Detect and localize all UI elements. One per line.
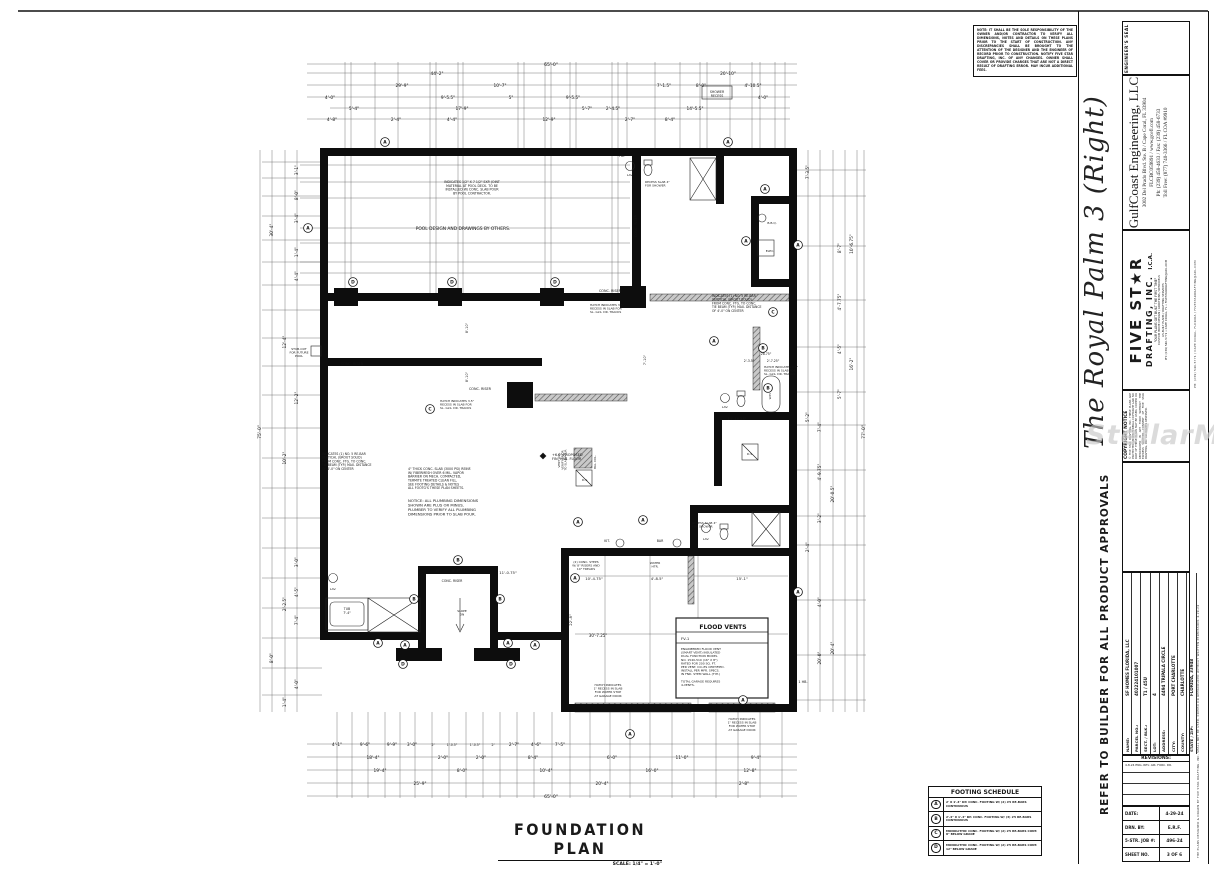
revision-entry <box>1123 773 1189 784</box>
sheet-admin-row: 5-STR. JOB #:496-24 <box>1123 835 1189 849</box>
svg-text:A: A <box>383 140 387 146</box>
plan-annotation: 5'-4" <box>349 106 359 112</box>
plan-annotation: INDICATES (1) NO. 5 RE-BARVERTICAL (GROU… <box>321 452 372 471</box>
bar-sink-symbol <box>673 539 681 547</box>
plan-annotation: 2'-3.5" <box>744 359 755 363</box>
plan-annotation: RECESS SLAB 4"FOR SHOWER <box>692 521 717 529</box>
plan-annotation: WATERHTR. <box>650 561 660 569</box>
plan-annotation: 8'-0" <box>457 768 467 774</box>
plan-annotation: 4'-0" <box>325 95 335 101</box>
footing-type-marker: D <box>349 278 358 287</box>
plan-annotation: 9'-5.5" <box>441 95 455 101</box>
plan-annotation: CONC. RISER <box>341 362 364 366</box>
footing-mark: B <box>929 812 944 825</box>
project-info-value: FLORIDA, 33948 <box>1189 659 1194 696</box>
plan-annotation: 30'-4" <box>269 224 275 237</box>
plan-annotation: 16'-0" <box>646 768 659 774</box>
benchmark-diamond <box>540 453 546 459</box>
footing-type-marker: A <box>304 224 313 233</box>
plan-annotation: 2'-4" <box>805 542 811 552</box>
project-info-row: PARCEL NO.:402224101007 <box>1132 573 1141 754</box>
plan-annotation: 10'-2" <box>282 452 288 465</box>
plan-annotation: INDICATES 1/2" X 7 1/2" EXP. JOINTMATERI… <box>444 180 500 196</box>
footing-type-marker: B <box>496 595 505 604</box>
plan-annotation: 10'-6.75" <box>849 234 855 254</box>
footing-type-marker: A <box>724 138 733 147</box>
plan-annotation: 3'-2" <box>817 513 823 523</box>
sheet-admin-value: 496-24 <box>1160 838 1189 843</box>
plan-annotation: 4'-6" <box>531 742 541 748</box>
plan-annotation: 65'-0" <box>544 62 558 68</box>
footing-type-marker: D <box>551 278 560 287</box>
drawing-title-block: FOUNDATION PLAN SCALE: 1/4" = 1'-0" <box>498 820 662 867</box>
engineering-firm-tollfree: Toll Free: (877) 740-3366 / FL COA #9910 <box>1163 76 1170 229</box>
footing-schedule-row: B2'-4" X 1'-4" DP. CONC. FOOTING W/ (3) … <box>929 812 1041 826</box>
svg-text:A: A <box>796 590 800 596</box>
plan-annotation: 8'-0" <box>294 190 300 200</box>
footing-type-marker: B <box>759 344 768 353</box>
svg-text:A: A <box>726 140 730 146</box>
plan-annotation: 8'-4" <box>665 117 675 123</box>
project-info-value: T1 / 45U <box>1143 677 1148 696</box>
lav-symbol <box>329 574 338 583</box>
svg-text:A: A <box>763 187 767 193</box>
drawing-sheet: 65'-0"44'-2"20'-10"29'-9"10'-7"7'-1.5"8'… <box>0 0 1214 869</box>
plan-annotation: 3'-1" <box>294 165 300 175</box>
engineering-firm-license: FLCBC059891 / www.gcefl.com <box>1149 76 1156 229</box>
plan-annotation: 14'-5.5" <box>686 106 703 112</box>
plan-annotation: CONC. RISER <box>469 387 492 391</box>
svg-text:A: A <box>796 243 800 249</box>
plan-annotation: CONC. RISER <box>634 214 638 237</box>
footing-desc: MONOLITHIC CONC. FOOTING W/ (2) #5 RE-BA… <box>944 830 1041 837</box>
plan-annotation: HATCH INDICATES1" RECESS IN SLABFOR WATE… <box>594 683 623 698</box>
plan-annotation: NOTICE: ALL PLUMBING DIMENSIONSSHOWN ARE… <box>408 498 479 517</box>
svg-text:A: A <box>573 576 577 582</box>
plan-annotation: 2'-7" <box>625 117 635 123</box>
plan-annotation: 10'-4" <box>540 768 553 774</box>
sheet-admin-label: 5-STR. JOB #: <box>1123 835 1160 848</box>
footing-type-marker: A <box>401 641 410 650</box>
footing-type-marker: A <box>531 641 540 650</box>
plan-title-script: The Royal Palm 3 (Right) <box>1080 22 1122 522</box>
plan-annotation: 2'-7.25" <box>767 359 780 363</box>
svg-text:D: D <box>351 280 355 286</box>
footing-type-marker: D <box>399 660 408 669</box>
edge-plans-note: THE PLANS DESIGNED & DRAWN BY FIVE STAR … <box>1196 538 1204 858</box>
plan-annotation: BAL. COL. <box>593 455 597 469</box>
plan-annotation: FLOOD VENTS <box>699 624 746 631</box>
footing-type-marker: C <box>426 405 435 414</box>
lav-symbol <box>721 394 730 403</box>
svg-text:A: A <box>744 239 748 245</box>
project-info-label: SECT. / BLK.: <box>1143 696 1148 754</box>
plan-annotation: FV-1 <box>681 636 690 641</box>
copyright-notice-text: © FIVE STAR DRAFTING, INC. THESE PLANS A… <box>1129 393 1148 459</box>
plan-annotation: SHOWERRECESS <box>710 90 725 98</box>
edge-contact-note: PH: (239) 540-5771 / CAPE CORAL, FLORIDA… <box>1193 230 1201 388</box>
footing-schedule-title: FOOTING SCHEDULE <box>929 787 1041 798</box>
plan-annotation: 5'-7" <box>837 389 843 399</box>
plan-annotation: 16'-2" <box>849 358 855 371</box>
plan-annotation: 12'-9" <box>543 117 556 123</box>
plan-annotation: 4'-4" <box>294 271 300 281</box>
project-info-row: ADDRESS:4494 TRIPALA CIRCLE <box>1160 573 1169 754</box>
plan-annotation: HATCH INDICATES1" RECESS IN SLABFOR WATE… <box>728 717 757 732</box>
plan-annotation: 20'-0" <box>817 652 823 665</box>
plan-annotation: 22'-8" <box>568 614 573 626</box>
plan-annotation: 10'-4.75" <box>585 576 603 581</box>
svg-text:A: A <box>306 226 310 232</box>
drawing-scale: SCALE: 1/4" = 1'-0" <box>498 861 662 867</box>
plan-annotation: 10" <box>474 569 480 573</box>
plan-annotation: 6'-0" <box>607 755 617 761</box>
plan-annotation: 2' <box>431 743 434 747</box>
plan-annotation: LAV. <box>722 405 729 409</box>
project-info-row: LOT:4 <box>1151 573 1160 754</box>
plan-annotation: 3'-4" <box>294 213 300 223</box>
revision-entry <box>1123 784 1189 795</box>
svg-text:A: A <box>533 643 537 649</box>
engineering-firm-address: 3002 Del Prado Blvd. Ste. B / Cape Coral… <box>1142 76 1149 229</box>
plan-annotation: B.B.Q. <box>767 221 776 225</box>
plan-annotation: KIT. <box>604 539 610 543</box>
footing-type-marker: A <box>794 241 803 250</box>
plan-annotation: 9'-4" <box>751 755 761 761</box>
plan-annotation: STUB-OUTFOR FUTUREPOOL <box>289 347 308 358</box>
project-info-value: 4494 TRIPALA CIRCLE <box>1161 647 1166 696</box>
svg-text:D: D <box>401 662 405 668</box>
project-info-block: NAME:SF HOMES FLORIDA, LLCPARCEL NO.:402… <box>1123 573 1189 754</box>
svg-text:D: D <box>509 662 513 668</box>
project-info-label: NAME: <box>1125 696 1130 754</box>
foundation-plan-drawing: 65'-0"44'-2"20'-10"29'-9"10'-7"7'-1.5"8'… <box>0 0 1214 869</box>
footing-type-marker: C <box>769 308 778 317</box>
drafting-firm-name2: DRAFTING, INC. <box>1145 276 1154 368</box>
plan-annotation: HATCH INDICATES 3.5"RECESS IN SLAB FORSL… <box>764 365 799 376</box>
plan-annotation: 4'-8" <box>327 117 337 123</box>
plan-annotation: 7'-5" <box>555 742 565 748</box>
plan-annotation: 75'-0" <box>257 425 263 439</box>
plan-annotation: 4'-0" <box>817 597 823 607</box>
sheet-admin-value: 3 OF 6 <box>1160 852 1189 857</box>
plan-annotation: 7'-1.5" <box>657 83 671 89</box>
plan-annotation: SLOPEDN <box>457 609 467 617</box>
footing-schedule-row: DMONOLITHIC CONC. FOOTING W/ (2) #5 RE-B… <box>929 841 1041 854</box>
sheet-admin-row: DATE:4-29-24 <box>1123 807 1189 821</box>
project-info-value: PORT CHARLOTTE <box>1171 655 1176 696</box>
footing-type-marker: B <box>410 595 419 604</box>
plumbing-fixtures <box>311 86 780 698</box>
plan-annotation: 20'-4" <box>830 642 836 655</box>
footing-desc: 2' X 1'-4" DP. CONC. FOOTING W/ (2) #5 R… <box>944 801 1041 808</box>
plan-annotation: 17'-9" <box>456 106 469 112</box>
footing-type-marker: A <box>574 518 583 527</box>
plan-annotation: RECESS SLAB 4"FOR SHOWER <box>645 180 670 188</box>
footing-type-marker: D <box>448 278 457 287</box>
sheet-admin-value: E.R.F. <box>1160 825 1189 830</box>
plan-annotation: INDICATES (1) NO. 5 RE-BARVERTICAL (GROU… <box>711 294 762 313</box>
empty-titleblock-cell <box>1122 462 1190 572</box>
engineer-seal-label: ENGINEER'S SEAL <box>1124 21 1134 73</box>
drafting-firm-line3: PH: (239) 540-5771 • CAPE CORAL, FL • FI… <box>1165 231 1169 389</box>
footing-schedule-rows: A2' X 1'-4" DP. CONC. FOOTING W/ (2) #5 … <box>929 798 1041 855</box>
plan-annotation: 3'-0" <box>407 742 417 748</box>
plan-annotation: 4'-4" <box>447 117 457 123</box>
sheet-admin-label: DATE: <box>1123 807 1160 820</box>
plan-annotation: 9'-5.5" <box>566 95 580 101</box>
footing-mark: C <box>929 827 944 840</box>
sheet-admin-block: DATE:4-29-24DRN. BY:E.R.F.5-STR. JOB #:4… <box>1122 806 1190 862</box>
project-info-value: SF HOMES FLORIDA, LLC <box>1125 639 1130 696</box>
plan-annotation: 2'-0" <box>438 755 448 761</box>
revision-entry: 4-8-24 ENG. REV. AIR. FORC. DR. <box>1123 762 1189 773</box>
sheet-admin-row: DRN. BY:E.R.F. <box>1123 821 1189 835</box>
plan-annotation: 4'-5" <box>294 587 300 597</box>
plan-annotation: 2'-2.5" <box>282 597 288 611</box>
plan-annotation: 25'-9" <box>414 781 427 787</box>
plan-annotation: 2'-7" <box>509 742 519 748</box>
plan-annotation: 4'-7.75" <box>837 293 843 310</box>
footing-type-marker: B <box>764 384 773 393</box>
plan-annotation: 4'-10.5" <box>744 83 761 89</box>
plan-annotation: 8'-4" <box>528 755 538 761</box>
copyright-notice-block: COPYRIGHT NOTICE © FIVE STAR DRAFTING, I… <box>1123 391 1189 461</box>
plan-annotation: 10" <box>435 569 441 573</box>
plan-annotation: 77'-0" <box>861 425 867 439</box>
project-info-label: COUNTY: <box>1180 696 1185 754</box>
svg-text:A: A <box>628 732 632 738</box>
plan-annotation: 3'-0" <box>294 557 300 567</box>
plan-annotation: 11'-0.75" <box>499 570 517 575</box>
plan-annotation: 12'-2" <box>294 392 300 405</box>
project-info-value: CHARLOTTE <box>1180 669 1185 696</box>
footing-type-marker: A <box>571 574 580 583</box>
svg-text:A: A <box>376 641 380 647</box>
plan-annotation: 4'-0" <box>758 95 768 101</box>
footing-schedule-row: A2' X 1'-4" DP. CONC. FOOTING W/ (2) #5 … <box>929 798 1041 812</box>
project-info-label: ADDRESS: <box>1161 696 1166 754</box>
svg-text:D: D <box>450 280 454 286</box>
plan-annotation: 1'-0.5" <box>470 743 481 747</box>
drafting-firm-block: FIVE ST★R DRAFTING, INC. I.C.A. "OUR PLA… <box>1123 231 1189 389</box>
project-info-row: CITY:PORT CHARLOTTE <box>1169 573 1178 754</box>
plan-annotation: 7'-10" <box>643 354 647 365</box>
footing-type-marker: A <box>639 516 648 525</box>
footing-desc: 2'-4" X 1'-4" DP. CONC. FOOTING W/ (3) #… <box>944 816 1041 823</box>
plan-annotation: 12'-8" <box>744 768 757 774</box>
footing-type-marker: A <box>710 337 719 346</box>
sheet-admin-value: 4-29-24 <box>1160 811 1189 816</box>
revisions-block: REVISIONS: 4-8-24 ENG. REV. AIR. FORC. D… <box>1122 755 1190 806</box>
footing-mark: D <box>929 841 944 854</box>
plan-annotation: 12'-4" <box>282 336 288 349</box>
plan-annotation: CONC. RISER <box>599 289 622 293</box>
plan-annotation: TUB7'-4" <box>343 607 352 615</box>
svg-text:C: C <box>428 407 431 413</box>
toilet-symbols <box>644 160 745 540</box>
plan-annotation: (2) CONC. STEPSW/ 8" RISERS AND10" TREAD… <box>572 560 600 571</box>
plan-annotation: W.H. <box>768 393 772 400</box>
plan-annotation: 4'-5" <box>837 344 843 354</box>
svg-text:A: A <box>403 643 407 649</box>
footing-type-marker: A <box>794 588 803 597</box>
project-info-row: COUNTY:CHARLOTTE <box>1178 573 1187 754</box>
svg-text:A: A <box>741 698 745 704</box>
plan-annotation: 5'-7" <box>582 106 592 112</box>
footing-type-marker: A <box>626 730 635 739</box>
plan-annotation: 11'-0" <box>676 755 689 761</box>
plan-annotation: 15'-1" <box>736 576 748 581</box>
bbq-symbol <box>758 214 766 222</box>
plan-annotation: HB. <box>619 154 624 158</box>
plan-annotation: 8'-10" <box>465 371 469 382</box>
footing-type-marker: A <box>761 185 770 194</box>
kitchen-sink-symbol <box>616 539 624 547</box>
plan-annotation: 30'-7.25" <box>589 633 608 638</box>
plan-annotation: D.S. <box>747 452 753 456</box>
drawing-title: FOUNDATION PLAN <box>498 820 662 861</box>
project-info-label: LOT: <box>1152 696 1157 754</box>
svg-text:C: C <box>771 310 774 316</box>
plan-annotation: 5'-2" <box>805 412 811 422</box>
engineering-firm-block: GulfCoast Engineering, LLC 3002 Del Prad… <box>1123 76 1189 229</box>
plan-annotation: 20'-10" <box>720 71 736 77</box>
plan-annotation: 7'-4" <box>294 615 300 625</box>
plan-annotation: LAV. <box>703 537 710 541</box>
plan-annotation: 2' <box>491 743 494 747</box>
plan-annotation: 8'-0" <box>696 83 706 89</box>
plan-annotation: 10'-7" <box>494 83 507 89</box>
sheet-border-right <box>1208 11 1209 864</box>
plan-annotation: 9'-9" <box>387 742 397 748</box>
titleblock-left-rule <box>1078 11 1079 864</box>
sheet-admin-label: DRN. BY: <box>1123 821 1160 834</box>
svg-text:A: A <box>641 518 645 524</box>
svg-text:A: A <box>506 641 510 647</box>
stub-out-symbol <box>311 346 321 356</box>
footing-desc: MONOLITHIC CONC. FOOTING W/ (2) #5 RE-BA… <box>944 844 1041 851</box>
plan-annotation: LAV. <box>627 173 634 177</box>
plan-annotation: 2'-0" <box>476 755 486 761</box>
project-info-label: STATE / ZIP: <box>1189 696 1194 754</box>
plan-annotation: 65'-0" <box>544 794 558 800</box>
plan-annotation: ELEC. <box>766 249 775 253</box>
plan-annotation: 2'-4.5" <box>606 106 620 112</box>
footing-schedule-row: CMONOLITHIC CONC. FOOTING W/ (2) #5 RE-B… <box>929 827 1041 841</box>
refer-to-builder-note: REFER TO BUILDER FOR ALL PRODUCT APPROVA… <box>1099 585 1115 815</box>
drafting-firm-reg: I.C.A. <box>1148 253 1154 270</box>
plan-annotation: BAR <box>657 539 664 543</box>
project-info-row: NAME:SF HOMES FLORIDA, LLC <box>1123 573 1132 754</box>
project-info-row: SECT. / BLK.:T1 / 45U <box>1141 573 1150 754</box>
sheet-admin-label: SHEET NO. <box>1123 848 1160 861</box>
plan-annotation: 4'-9.75" <box>817 463 823 480</box>
plan-annotation: 4'-0" <box>294 679 300 689</box>
plan-annotation: 13'-10.25" <box>728 417 747 421</box>
plan-annotation: 20'-0.5" <box>830 485 836 502</box>
plan-annotation: 18'-4" <box>367 755 380 761</box>
project-info-label: PARCEL NO.: <box>1134 696 1139 754</box>
plan-annotation: 4'-4" <box>452 568 461 573</box>
project-info-value: 4 <box>1152 693 1157 696</box>
plan-annotation: 8'-7" <box>837 243 843 253</box>
footing-type-marker: A <box>739 696 748 705</box>
elec-pad-symbol <box>758 240 774 256</box>
svg-text:A: A <box>712 339 716 345</box>
footing-type-marker: A <box>374 639 383 648</box>
engineering-firm-name: GulfCoast Engineering, LLC <box>1126 76 1142 229</box>
svg-text:D: D <box>553 280 557 286</box>
plan-annotation: LAV. <box>330 587 337 591</box>
plan-annotation: ENGINEERED FLOOD VENT(SMART VENT) INSULA… <box>680 647 725 687</box>
plan-annotation: 29'-9" <box>396 83 409 89</box>
plan-annotation: 4" THICK CONC. SLAB (3000 PSI) REINF.W/ … <box>407 467 471 490</box>
plan-annotation: 7'-3.5" <box>805 165 811 179</box>
plan-annotation: HATCH INDICATES 3.5"RECESS IN SLAB FORSL… <box>590 303 625 314</box>
plan-annotation: 8'-0" <box>269 653 275 663</box>
plan-annotation: VENT LOC.VERIFY PRIORTO SLAB POUR <box>557 450 568 472</box>
plan-annotation: 4'-1" <box>332 742 342 748</box>
plan-annotation: HATCH INDICATES 3.5"RECESS IN SLAB FORSL… <box>440 399 475 410</box>
project-info-label: CITY: <box>1171 696 1176 754</box>
plan-annotation: 1 HB. <box>798 680 807 684</box>
revision-entries: 4-8-24 ENG. REV. AIR. FORC. DR. <box>1123 762 1189 795</box>
project-info-value: 402224101007 <box>1134 662 1139 696</box>
plan-annotation: 1'-4" <box>294 247 300 257</box>
engineering-firm-phone: Ph: (239) 458-4633 / Fax: (239) 458-6733 <box>1156 76 1163 229</box>
plan-annotation: 2'-4" <box>391 117 401 123</box>
svg-text:A: A <box>576 520 580 526</box>
footing-type-marker: A <box>504 639 513 648</box>
plan-annotation: CONC. RISER <box>442 579 464 583</box>
plan-annotation: 2'-8" <box>739 781 749 787</box>
footing-mark: A <box>929 798 944 811</box>
plan-annotation: 9'-6" <box>360 742 370 748</box>
plan-annotation: 4'-8.5" <box>651 576 664 581</box>
plan-annotation: 20'-4" <box>596 781 609 787</box>
plan-annotation: 8'-10" <box>465 322 469 333</box>
plan-annotation: POOL DESIGN AND DRAWINGS BY OTHERS. <box>416 226 511 232</box>
plan-annotation: 1'-4" <box>282 697 288 707</box>
drafting-firm-name: FIVE ST★R <box>1127 231 1145 389</box>
plan-annotation: 19'-4" <box>374 768 387 774</box>
plan-annotation: 7'-4" <box>817 422 823 432</box>
footing-type-marker: A <box>381 138 390 147</box>
footing-schedule: FOOTING SCHEDULE A2' X 1'-4" DP. CONC. F… <box>928 786 1042 856</box>
footing-type-marker: B <box>454 556 463 565</box>
footing-type-marker: A <box>742 237 751 246</box>
footing-type-marker: D <box>507 660 516 669</box>
sheet-admin-row: SHEET NO.3 OF 6 <box>1123 848 1189 862</box>
plan-annotation: D.S. <box>582 478 588 482</box>
plan-annotation: 44'-2" <box>431 71 444 77</box>
disclaimer-note: NOTE: IT SHALL BE THE SOLE RESPONSIBILIT… <box>973 25 1077 77</box>
plan-annotation: 1'-0.5" <box>447 743 458 747</box>
plan-annotation: 5" <box>509 95 514 101</box>
